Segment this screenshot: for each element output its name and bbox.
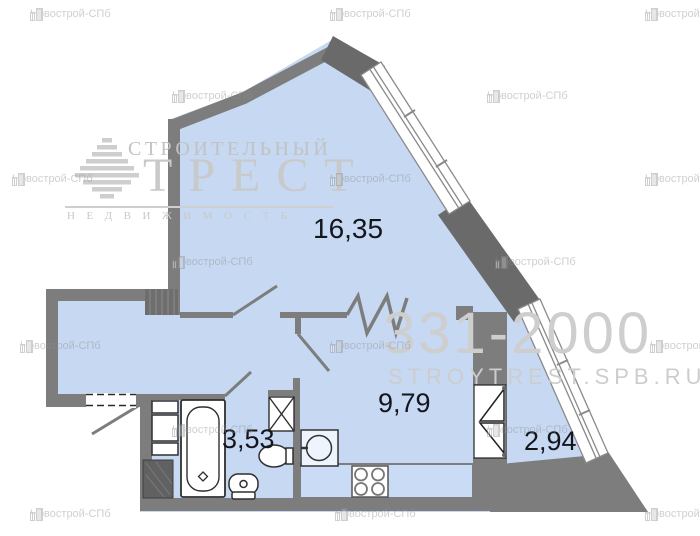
entry-door-opening (86, 393, 136, 408)
bathtub (181, 400, 225, 497)
room-area-label-kitchen: 9,79 (378, 388, 431, 418)
floor-plan: 16,35 9,79 3,53 2,94 (0, 0, 700, 536)
floor-plan-image: 16,35 9,79 3,53 2,94 СТР (0, 0, 700, 536)
toilet (229, 474, 258, 499)
duct-shaft-bathroom (143, 460, 173, 498)
room-area-label-balcony: 2,94 (524, 426, 577, 456)
balcony-door (474, 385, 506, 458)
room-area-label-bathroom: 3,53 (222, 424, 275, 454)
kitchen-stove (352, 466, 388, 497)
bathroom-cabinet (152, 401, 178, 455)
room-area-label-living: 16,35 (313, 213, 383, 244)
kitchen-sink (301, 430, 338, 466)
door-swing-entry (92, 406, 138, 434)
duct-shaft-hall (145, 289, 178, 315)
